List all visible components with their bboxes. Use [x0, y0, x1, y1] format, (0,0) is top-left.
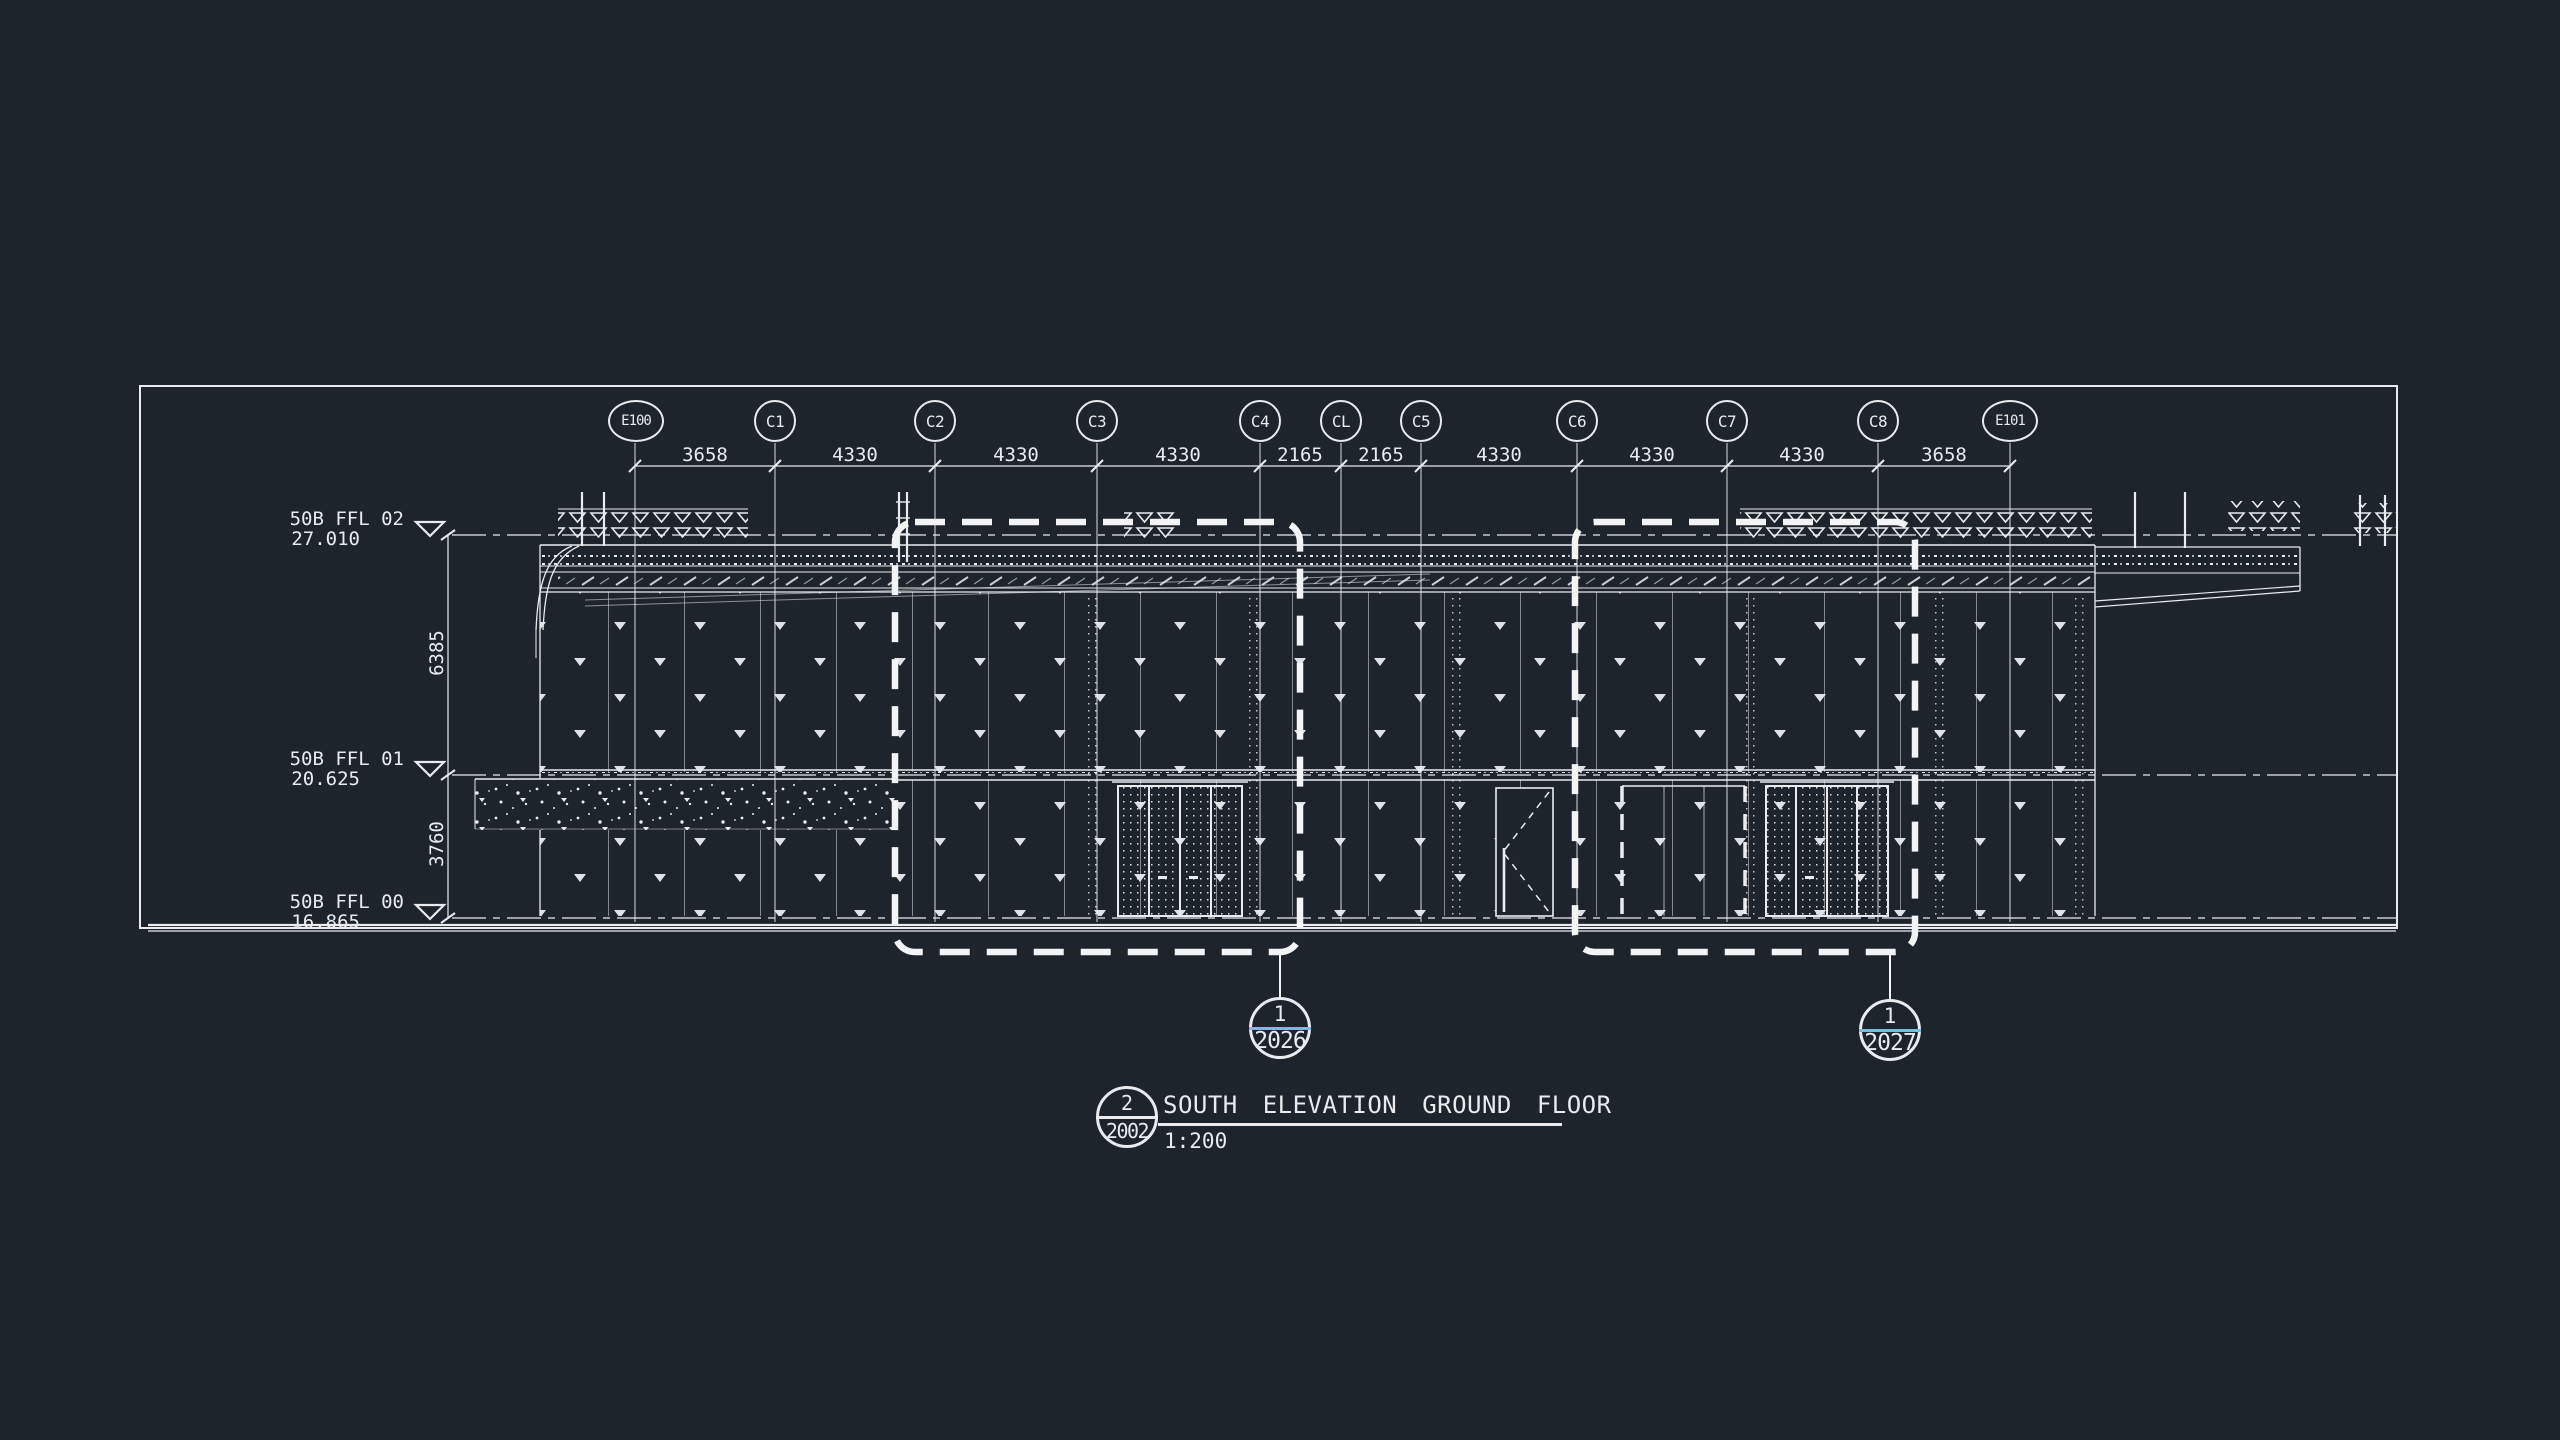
grid-bubble-e101: E101	[1982, 400, 2038, 442]
level-elevation: 16.865	[180, 912, 404, 932]
dim-label: 4330	[1123, 444, 1233, 466]
callout-number: 1	[1252, 1002, 1308, 1026]
view-title-bubble: 2 2002	[1096, 1086, 1158, 1148]
level-elevation: 20.625	[180, 769, 404, 789]
grid-bubble-c4: C4	[1239, 400, 1281, 442]
view-sheet-number: 2002	[1099, 1119, 1155, 1143]
view-number: 2	[1099, 1091, 1155, 1115]
parapet-louver-rows	[558, 501, 2396, 540]
level-elevation: 27.010	[180, 529, 404, 549]
view-scale: 1:200	[1164, 1129, 1227, 1153]
level-label-ffl02: 50B FFL 02 27.010	[180, 509, 404, 549]
dim-label: 2165	[1326, 444, 1436, 466]
mesh-door-1	[1112, 782, 1248, 916]
grid-bubble-c7: C7	[1706, 400, 1748, 442]
dim-label: 4330	[1444, 444, 1554, 466]
dim-label: 4330	[961, 444, 1071, 466]
detail-callout-2026: 1 2026	[1249, 997, 1311, 1059]
vertical-dim-3760: 3760	[426, 784, 448, 904]
level-flag-ffl01	[416, 762, 444, 776]
grid-bubble-e100: E100	[608, 400, 664, 442]
grid-bubble-c1: C1	[754, 400, 796, 442]
view-title: SOUTH ELEVATION GROUND FLOOR	[1163, 1091, 1612, 1119]
level-name: 50B FFL 00	[180, 892, 404, 912]
grid-bubble-cl: CL	[1320, 400, 1362, 442]
vertical-dim-6385: 6385	[426, 593, 448, 713]
mesh-door-2	[1760, 782, 1894, 916]
callout-sheet: 2027	[1862, 1030, 1918, 1056]
cad-elevation-view: E100 C1 C2 C3 C4 CL C5 C6 C7 C8 E101 365…	[0, 0, 2560, 1440]
level-name: 50B FFL 02	[180, 509, 404, 529]
level-flag-ffl00	[416, 905, 444, 919]
upper-panel-joints	[540, 592, 2095, 772]
dim-label: 3658	[1889, 444, 1999, 466]
level-flag-ffl02	[416, 522, 444, 536]
view-title-underline	[1158, 1123, 1562, 1126]
right-canopy	[2095, 547, 2300, 607]
level-label-ffl00: 50B FFL 00 16.865	[180, 892, 404, 932]
dim-label: 4330	[1597, 444, 1707, 466]
grid-bubble-c3: C3	[1076, 400, 1118, 442]
terrace-stipple-band	[475, 779, 898, 830]
elevation-linework	[0, 0, 2560, 1440]
callout-number: 1	[1862, 1004, 1918, 1028]
hinged-door	[1496, 788, 1553, 916]
dim-label: 4330	[1747, 444, 1857, 466]
building-elevation	[148, 492, 2396, 931]
callout-sheet: 2026	[1252, 1028, 1308, 1054]
grid-bubble-c6: C6	[1556, 400, 1598, 442]
grid-bubble-c2: C2	[914, 400, 956, 442]
dim-label: 3658	[650, 444, 760, 466]
grid-bubble-c5: C5	[1400, 400, 1442, 442]
grid-bubble-c8: C8	[1857, 400, 1899, 442]
detail-callout-2027: 1 2027	[1859, 999, 1921, 1061]
dim-label: 4330	[800, 444, 910, 466]
level-name: 50B FFL 01	[180, 749, 404, 769]
level-label-ffl01: 50B FFL 01 20.625	[180, 749, 404, 789]
